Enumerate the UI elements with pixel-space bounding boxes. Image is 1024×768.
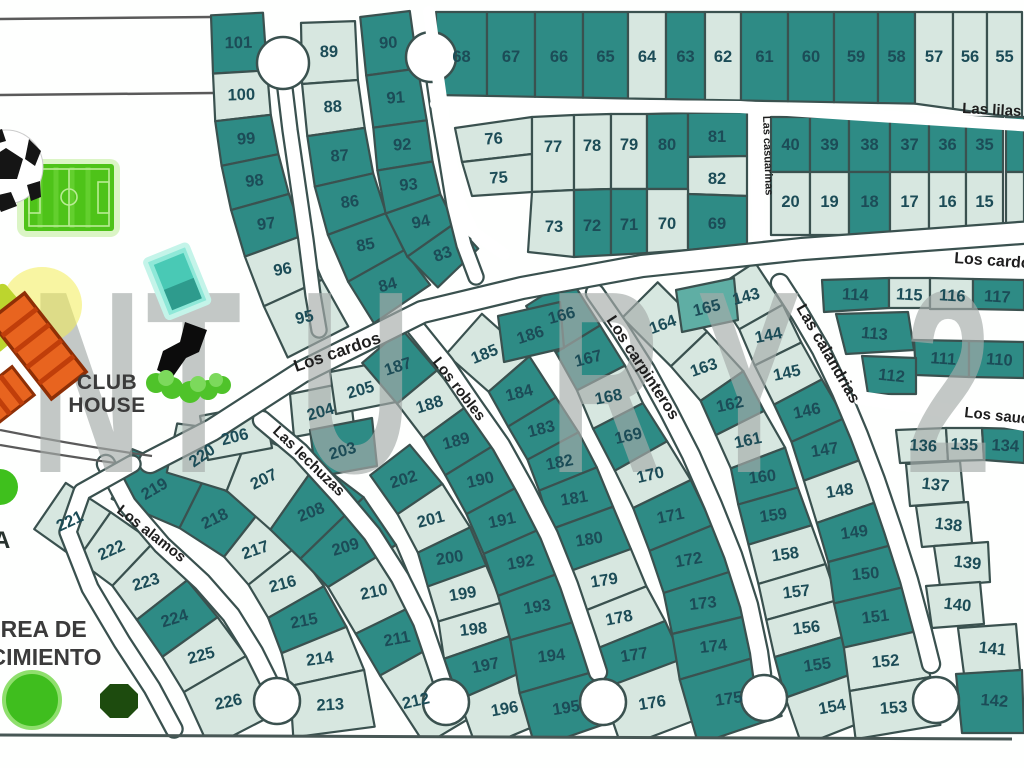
- svg-text:77: 77: [544, 138, 562, 156]
- svg-text:85: 85: [355, 235, 376, 256]
- svg-text:37: 37: [900, 136, 918, 154]
- svg-text:93: 93: [399, 175, 419, 195]
- svg-text:38: 38: [860, 136, 878, 154]
- svg-text:ESPARCIMIENTO: ESPARCIMIENTO: [0, 644, 102, 670]
- svg-text:HOUSE: HOUSE: [68, 394, 145, 417]
- svg-text:101: 101: [224, 34, 252, 52]
- svg-text:70: 70: [658, 215, 676, 233]
- svg-text:39: 39: [820, 136, 838, 154]
- svg-text:58: 58: [887, 48, 905, 66]
- svg-text:55: 55: [995, 48, 1013, 66]
- svg-text:18: 18: [860, 193, 878, 211]
- svg-text:115: 115: [895, 285, 923, 304]
- svg-text:56: 56: [961, 48, 979, 66]
- svg-text:142: 142: [980, 691, 1009, 711]
- svg-text:141: 141: [978, 639, 1007, 660]
- svg-text:60: 60: [802, 48, 820, 66]
- svg-text:67: 67: [502, 48, 520, 66]
- svg-text:153: 153: [879, 698, 908, 718]
- svg-text:113: 113: [860, 324, 888, 344]
- svg-text:78: 78: [583, 137, 601, 155]
- svg-text:92: 92: [393, 136, 412, 155]
- svg-text:112: 112: [877, 366, 905, 387]
- svg-text:175: 175: [714, 688, 744, 710]
- svg-text:72: 72: [583, 217, 601, 235]
- svg-text:156: 156: [792, 617, 822, 638]
- svg-text:15: 15: [975, 193, 993, 211]
- svg-text:194: 194: [537, 646, 567, 667]
- svg-text:135: 135: [950, 435, 978, 454]
- svg-text:198: 198: [459, 619, 488, 640]
- svg-text:174: 174: [699, 636, 729, 657]
- svg-text:98: 98: [244, 171, 264, 191]
- svg-text:97: 97: [256, 214, 277, 234]
- svg-text:19: 19: [820, 193, 838, 211]
- svg-text:81: 81: [708, 128, 726, 146]
- svg-text:114: 114: [841, 285, 869, 304]
- svg-text:158: 158: [770, 544, 800, 566]
- svg-text:20: 20: [781, 193, 799, 211]
- svg-text:90: 90: [379, 34, 398, 53]
- svg-text:82: 82: [708, 170, 726, 188]
- svg-text:Las lilas: Las lilas: [962, 100, 1022, 120]
- svg-text:96: 96: [272, 259, 293, 280]
- svg-text:17: 17: [900, 193, 918, 211]
- svg-text:71: 71: [620, 216, 638, 234]
- svg-text:139: 139: [953, 553, 982, 574]
- svg-text:136: 136: [909, 436, 937, 455]
- svg-text:140: 140: [943, 595, 972, 616]
- svg-text:79: 79: [620, 136, 638, 154]
- svg-text:64: 64: [638, 48, 657, 66]
- svg-text:91: 91: [386, 88, 406, 107]
- svg-text:88: 88: [323, 98, 342, 117]
- svg-text:89: 89: [320, 43, 339, 61]
- svg-text:40: 40: [781, 136, 799, 154]
- svg-text:36: 36: [938, 136, 956, 154]
- svg-text:62: 62: [714, 48, 732, 66]
- svg-text:111: 111: [930, 349, 957, 369]
- svg-text:134: 134: [991, 436, 1020, 455]
- svg-text:152: 152: [871, 651, 900, 671]
- svg-text:65: 65: [596, 48, 614, 66]
- svg-text:87: 87: [330, 146, 350, 165]
- svg-text:CLUB: CLUB: [77, 371, 137, 394]
- svg-text:76: 76: [484, 129, 504, 148]
- svg-text:157: 157: [782, 581, 812, 602]
- svg-text:66: 66: [550, 48, 568, 66]
- svg-text:173: 173: [688, 593, 717, 614]
- svg-text:57: 57: [925, 48, 943, 66]
- svg-text:AREA DE: AREA DE: [0, 616, 87, 642]
- svg-text:137: 137: [921, 475, 950, 496]
- svg-text:155: 155: [802, 654, 832, 676]
- svg-text:213: 213: [316, 695, 344, 714]
- svg-text:100: 100: [227, 86, 255, 105]
- svg-text:138: 138: [934, 515, 963, 536]
- svg-text:63: 63: [676, 48, 694, 66]
- svg-text:95: 95: [294, 307, 316, 328]
- svg-text:110: 110: [985, 350, 1013, 370]
- svg-text:75: 75: [489, 168, 509, 187]
- svg-text:99: 99: [236, 129, 256, 148]
- svg-text:A: A: [0, 527, 10, 554]
- svg-text:159: 159: [758, 505, 788, 527]
- svg-text:73: 73: [545, 218, 563, 236]
- svg-text:61: 61: [755, 48, 773, 66]
- svg-text:69: 69: [708, 215, 726, 233]
- svg-text:116: 116: [938, 286, 966, 305]
- svg-text:16: 16: [938, 193, 956, 211]
- svg-text:80: 80: [658, 136, 676, 154]
- svg-text:117: 117: [983, 287, 1011, 306]
- svg-text:151: 151: [861, 606, 891, 627]
- svg-text:68: 68: [452, 48, 470, 66]
- svg-text:59: 59: [847, 48, 865, 66]
- svg-text:149: 149: [839, 522, 869, 544]
- svg-text:86: 86: [340, 192, 360, 212]
- svg-text:35: 35: [975, 136, 993, 154]
- svg-text:160: 160: [748, 466, 778, 487]
- svg-text:150: 150: [851, 564, 880, 584]
